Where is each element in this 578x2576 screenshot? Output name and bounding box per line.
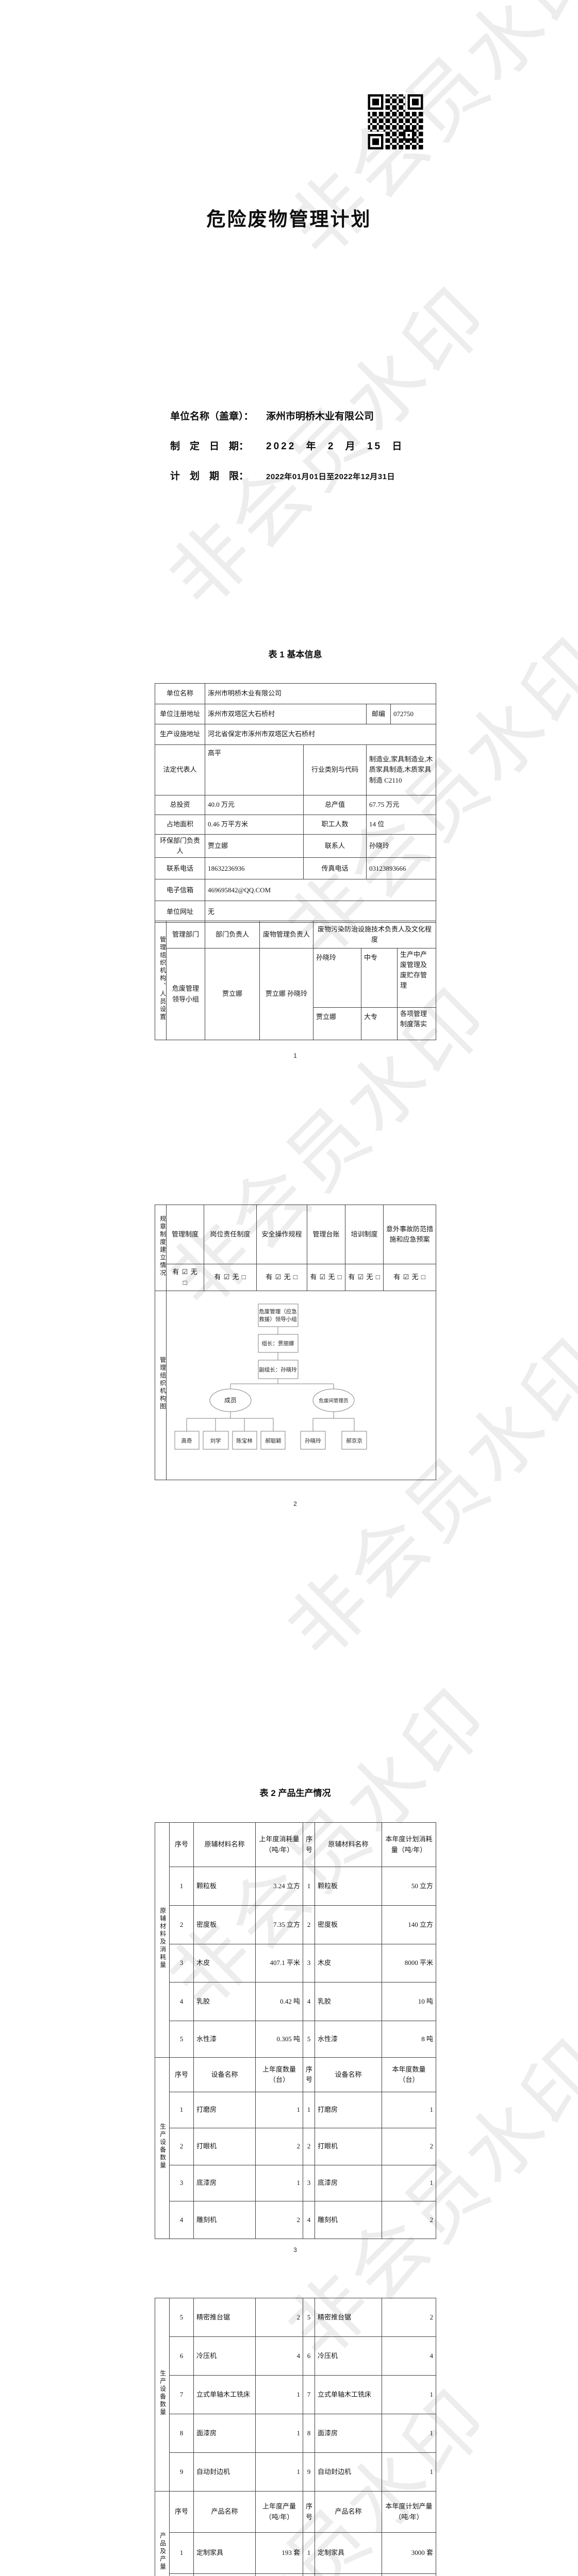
row-index: 2 bbox=[170, 2128, 194, 2165]
prev-count: 2 bbox=[256, 2128, 303, 2165]
prev-count: 4 bbox=[256, 2337, 303, 2376]
unit-name-label: 单位名称（盖章）： bbox=[170, 409, 266, 422]
column-header: 管理部门 bbox=[167, 921, 205, 948]
equipment-row: 2 打眼机 2 2 打眼机 2 bbox=[155, 2128, 436, 2165]
field-label: 单位名称 bbox=[155, 684, 205, 704]
column-header: 岗位责任制度 bbox=[204, 1205, 257, 1264]
issue-date-line: 制 定 日 期：2022 年 2 月 15 日 bbox=[170, 438, 459, 452]
row-index: 7 bbox=[170, 2376, 194, 2414]
field-value: 贾立娜 bbox=[205, 835, 304, 858]
has-checkbox: 有 ☑ 无 □ bbox=[307, 1264, 345, 1291]
field-value: 40.0 万元 bbox=[205, 795, 304, 815]
field-label: 环保部门负责人 bbox=[155, 835, 205, 858]
waste-manager-cell: 贾立娜 孙晓玲 bbox=[260, 948, 313, 1040]
row-index: 3 bbox=[170, 2165, 194, 2201]
equipment-name: 立式单轴木工铣床 bbox=[315, 2376, 382, 2414]
prev-count: 1 bbox=[256, 2092, 303, 2128]
section-label-cell: 规章制度建立情况 bbox=[155, 1205, 167, 1291]
equipment-name: 雕刻机 bbox=[315, 2201, 382, 2239]
column-header: 培训制度 bbox=[345, 1205, 384, 1264]
product-name: 定制家具 bbox=[194, 2533, 256, 2574]
row-index: 1 bbox=[170, 2533, 194, 2574]
plan-count: 1 bbox=[382, 2165, 436, 2201]
prev-output: 162 樘 bbox=[256, 2574, 303, 2576]
column-header: 部门负责人 bbox=[205, 921, 260, 948]
org-text: 郝京京 bbox=[346, 1437, 362, 1444]
section-label-cell: 管理组织机构图 bbox=[155, 1291, 167, 1480]
field-value: 072750 bbox=[391, 704, 436, 724]
production-table: 原辅材料及消耗量 序号 原辅材料名称 上年度消耗量（吨/年） 序号 原辅材料名称… bbox=[155, 1822, 436, 2239]
row-index: 5 bbox=[303, 2021, 315, 2058]
equipment-name: 精密推台锯 bbox=[194, 2298, 256, 2337]
unit-name-line: 单位名称（盖章）：涿州市明桥木业有限公司 bbox=[170, 409, 459, 422]
column-header: 意外事故防范措施和应急预案 bbox=[384, 1205, 436, 1264]
has-checkbox: 有 ☑ 无 □ bbox=[204, 1264, 257, 1291]
products-section-label: 产品及产量 bbox=[158, 2532, 168, 2571]
plan-count: 2 bbox=[382, 2298, 436, 2337]
row-index: 3 bbox=[303, 1944, 315, 1982]
material-name: 密度板 bbox=[194, 1906, 256, 1944]
equipment-section-label: 生产设备数量 bbox=[158, 2123, 168, 2170]
equipment-name: 冷压机 bbox=[194, 2337, 256, 2376]
plan-count: 4 bbox=[382, 2337, 436, 2376]
material-name: 水性漆 bbox=[194, 2021, 256, 2058]
org-text: 救援）领导小组 bbox=[259, 1316, 297, 1323]
field-label: 邮编 bbox=[367, 704, 391, 724]
equipment-row: 4 雕刻机 2 4 雕刻机 2 bbox=[155, 2201, 436, 2239]
equipment-row: 7 立式单轴木工铣床 1 7 立式单轴木工铣床 1 bbox=[155, 2376, 436, 2414]
row-index: 5 bbox=[170, 2298, 194, 2337]
org-text: 郝聪颖 bbox=[265, 1437, 282, 1444]
plan-period-value: 2022年01月01日至2022年12月31日 bbox=[266, 472, 395, 481]
product-name: 木门 bbox=[315, 2574, 382, 2576]
material-row: 3 木皮 407.1 平米 3 木皮 8000 平米 bbox=[155, 1944, 436, 1982]
row-index: 1 bbox=[170, 2092, 194, 2128]
column-header: 原辅材料名称 bbox=[194, 1823, 256, 1867]
row-index: 5 bbox=[170, 2021, 194, 2058]
section-label-cell: 生产设备数量 bbox=[155, 2298, 170, 2492]
column-header: 管理制度 bbox=[167, 1205, 204, 1264]
equipment-row: 9 自动封边机 1 9 自动封边机 1 bbox=[155, 2453, 436, 2492]
plan-amount: 10 吨 bbox=[382, 1982, 436, 2021]
row-index: 8 bbox=[303, 2414, 315, 2453]
plan-count: 2 bbox=[382, 2201, 436, 2239]
person-name: 孙晓玲 bbox=[313, 948, 361, 1008]
column-header: 本年度计划消耗量（吨/年） bbox=[382, 1823, 436, 1867]
plan-count: 1 bbox=[382, 2376, 436, 2414]
material-name: 木皮 bbox=[194, 1944, 256, 1982]
org-text: 刘学 bbox=[210, 1437, 221, 1444]
column-header: 设备名称 bbox=[315, 2058, 382, 2092]
material-name: 乳胶 bbox=[315, 1982, 382, 2021]
page-number: 2 bbox=[155, 1500, 436, 1507]
prev-count: 1 bbox=[256, 2453, 303, 2492]
material-name: 木皮 bbox=[315, 1944, 382, 1982]
field-label: 联系电话 bbox=[155, 858, 205, 879]
org-text: 危废管理（应急 bbox=[259, 1308, 297, 1315]
person-education: 大专 bbox=[361, 1008, 398, 1040]
row-index: 3 bbox=[303, 2165, 315, 2201]
prev-amount: 7.35 立方 bbox=[256, 1906, 303, 1944]
prev-output: 193 套 bbox=[256, 2533, 303, 2574]
org-text: 组长：贾丽娜 bbox=[262, 1340, 294, 1347]
equipment-name: 底漆房 bbox=[315, 2165, 382, 2201]
has-checkbox: 有 ☑ 无 □ bbox=[384, 1264, 436, 1291]
personnel-section-label: 管理组织机构、人员设置 bbox=[158, 936, 167, 1021]
product-name: 定制家具 bbox=[315, 2533, 382, 2574]
row-index: 1 bbox=[170, 1867, 194, 1906]
material-row: 2 密度板 7.35 立方 2 密度板 140 立方 bbox=[155, 1906, 436, 1944]
table2-caption: 表 2 产品生产情况 bbox=[155, 1786, 436, 1799]
product-row: 2 木门 162 樘 2 木门 3000 樘 bbox=[155, 2574, 436, 2576]
material-name: 颗粒板 bbox=[194, 1867, 256, 1906]
column-header: 安全操作规程 bbox=[257, 1205, 307, 1264]
material-row: 1 颗粒板 3.24 立方 1 颗粒板 50 立方 bbox=[155, 1867, 436, 1906]
field-value: 14 位 bbox=[367, 815, 436, 835]
prev-amount: 0.42 吨 bbox=[256, 1982, 303, 2021]
field-value: 制造业,家具制造业,木质家具制造,木质家具制造 C2110 bbox=[367, 745, 436, 795]
column-header: 序号 bbox=[303, 2492, 315, 2533]
person-duty: 生产中产废管理及废贮存管理 bbox=[398, 948, 436, 1008]
field-value: 高平 bbox=[205, 745, 304, 795]
org-box-leading-group bbox=[258, 1304, 298, 1327]
equipment-name: 冷压机 bbox=[315, 2337, 382, 2376]
equipment-name: 打磨房 bbox=[315, 2092, 382, 2128]
row-index: 4 bbox=[303, 2201, 315, 2239]
field-label: 联系人 bbox=[304, 835, 367, 858]
dept-head-cell: 贾立娜 bbox=[205, 948, 260, 1040]
row-index: 6 bbox=[303, 2337, 315, 2376]
prev-count: 1 bbox=[256, 2376, 303, 2414]
product-row: 1 定制家具 193 套 1 定制家具 3000 套 bbox=[155, 2533, 436, 2574]
row-index: 4 bbox=[170, 2201, 194, 2239]
prev-count: 2 bbox=[256, 2201, 303, 2239]
issue-date-value: 2022 年 2 月 15 日 bbox=[266, 441, 404, 452]
equipment-name: 面漆房 bbox=[194, 2414, 256, 2453]
section-label-cell: 原辅材料及消耗量 bbox=[155, 1823, 170, 2058]
field-value: 0.46 万平方米 bbox=[205, 815, 304, 835]
section-label-cell: 管理组织机构、人员设置 bbox=[155, 921, 167, 1040]
column-header: 产品名称 bbox=[315, 2492, 382, 2533]
equipment-name: 立式单轴木工铣床 bbox=[194, 2376, 256, 2414]
equipment-name: 打眼机 bbox=[194, 2128, 256, 2165]
row-index: 1 bbox=[303, 2533, 315, 2574]
row-index: 2 bbox=[303, 2574, 315, 2576]
person-education: 中专 bbox=[361, 948, 398, 1008]
material-name: 密度板 bbox=[315, 1906, 382, 1944]
field-label: 行业类别与代码 bbox=[304, 745, 367, 795]
prev-amount: 0.305 吨 bbox=[256, 2021, 303, 2058]
field-label: 单位网址 bbox=[155, 901, 205, 923]
row-index: 3 bbox=[170, 1944, 194, 1982]
row-index: 6 bbox=[170, 2337, 194, 2376]
equipment-name: 打眼机 bbox=[315, 2128, 382, 2165]
field-label: 法定代表人 bbox=[155, 745, 205, 795]
issue-date-label: 制 定 日 期： bbox=[170, 438, 266, 452]
field-value: 孙晓玲 bbox=[367, 835, 436, 858]
page-number: 3 bbox=[155, 2246, 436, 2253]
column-header: 产品名称 bbox=[194, 2492, 256, 2533]
field-label: 单位注册地址 bbox=[155, 704, 205, 724]
column-header: 上年度数量（台） bbox=[256, 2058, 303, 2092]
column-header: 本年度数量（台） bbox=[382, 2058, 436, 2092]
personnel-table: 管理组织机构、人员设置 管理部门 部门负责人 废物管理负责人 废物污染防治设施技… bbox=[155, 921, 436, 1040]
field-label: 总产值 bbox=[304, 795, 367, 815]
field-label: 生产设施地址 bbox=[155, 724, 205, 745]
column-header: 原辅材料名称 bbox=[315, 1823, 382, 1867]
plan-count: 2 bbox=[382, 2128, 436, 2165]
org-chart-cell: 危废管理（应急 救援）领导小组 组长：贾丽娜 副组长：孙晓玲 成员 危废间管理员… bbox=[167, 1291, 436, 1480]
row-index: 2 bbox=[170, 1906, 194, 1944]
field-value: 03123893666 bbox=[367, 858, 436, 879]
field-value: 469695842@QQ.COM bbox=[205, 879, 436, 901]
column-header: 废物污染防治设施技术负责人及文化程度 bbox=[313, 921, 436, 948]
field-label: 占地面积 bbox=[155, 815, 205, 835]
field-value: 18632236936 bbox=[205, 858, 304, 879]
row-index: 2 bbox=[170, 2574, 194, 2576]
person-duty: 各项管理制度落实 bbox=[398, 1008, 436, 1040]
row-index: 4 bbox=[170, 1982, 194, 2021]
material-name: 水性漆 bbox=[315, 2021, 382, 2058]
column-header: 废物管理负责人 bbox=[260, 921, 313, 948]
qr-code bbox=[367, 94, 424, 149]
field-label: 总投资 bbox=[155, 795, 205, 815]
table1-caption: 表 1 基本信息 bbox=[155, 647, 436, 660]
equipment-name: 自动封边机 bbox=[315, 2453, 382, 2492]
prev-count: 1 bbox=[256, 2414, 303, 2453]
person-name: 贾立娜 bbox=[313, 1008, 361, 1040]
field-label: 电子信箱 bbox=[155, 879, 205, 901]
column-header: 序号 bbox=[170, 1823, 194, 1867]
equipment-row: 8 面漆房 1 8 面漆房 1 bbox=[155, 2414, 436, 2453]
material-row: 4 乳胶 0.42 吨 4 乳胶 10 吨 bbox=[155, 1982, 436, 2021]
has-checkbox: 有 ☑ 无 □ bbox=[257, 1264, 307, 1291]
institutions-table: 规章制度建立情况 管理制度 岗位责任制度 安全操作规程 管理台账 培训制度 意外… bbox=[155, 1205, 436, 1480]
equipment-name: 雕刻机 bbox=[194, 2201, 256, 2239]
org-text: 陈宝林 bbox=[236, 1437, 253, 1444]
prev-amount: 3.24 立方 bbox=[256, 1867, 303, 1906]
plan-count: 1 bbox=[382, 2414, 436, 2453]
row-index: 1 bbox=[303, 1867, 315, 1906]
orgchart-section-label: 管理组织机构图 bbox=[158, 1357, 167, 1411]
row-index: 8 bbox=[170, 2414, 194, 2453]
row-index: 5 bbox=[303, 2298, 315, 2337]
org-text: 成员 bbox=[224, 1397, 237, 1404]
institutions-section-label: 规章制度建立情况 bbox=[158, 1215, 167, 1277]
section-label-cell: 生产设备数量 bbox=[155, 2058, 170, 2239]
equipment-section-label: 生产设备数量 bbox=[158, 2370, 168, 2416]
production-table-continued: 生产设备数量 5 精密推台锯 2 5 精密推台锯 2 6 冷压机 4 6 冷压机… bbox=[155, 2298, 436, 2576]
org-chart: 危废管理（应急 救援）领导小组 组长：贾丽娜 副组长：孙晓玲 成员 危废间管理员… bbox=[169, 1292, 436, 1479]
field-value: 河北省保定市涿州市双塔区大石桥村 bbox=[205, 724, 436, 745]
field-value: 无 bbox=[205, 901, 436, 923]
equipment-row: 1 打磨房 1 1 打磨房 1 bbox=[155, 2092, 436, 2128]
product-name: 木门 bbox=[194, 2574, 256, 2576]
has-checkbox: 有 ☑ 无 □ bbox=[167, 1264, 204, 1291]
plan-amount: 8000 平米 bbox=[382, 1944, 436, 1982]
equipment-row: 3 底漆房 1 3 底漆房 1 bbox=[155, 2165, 436, 2201]
row-index: 4 bbox=[303, 1982, 315, 2021]
org-text: 孙晓玲 bbox=[305, 1437, 321, 1444]
equipment-name: 面漆房 bbox=[315, 2414, 382, 2453]
column-header: 设备名称 bbox=[194, 2058, 256, 2092]
page-number: 1 bbox=[155, 1052, 436, 1059]
equipment-row: 生产设备数量 5 精密推台锯 2 5 精密推台锯 2 bbox=[155, 2298, 436, 2337]
equipment-name: 底漆房 bbox=[194, 2165, 256, 2201]
equipment-name: 打磨房 bbox=[194, 2092, 256, 2128]
column-header: 上年度消耗量（吨/年） bbox=[256, 1823, 303, 1867]
has-checkbox: 有 ☑ 无 □ bbox=[345, 1264, 384, 1291]
field-label: 职工人数 bbox=[304, 815, 367, 835]
column-header: 本年度计划产量（吨/年） bbox=[382, 2492, 436, 2533]
plan-output: 3000 套 bbox=[382, 2533, 436, 2574]
equipment-row: 6 冷压机 4 6 冷压机 4 bbox=[155, 2337, 436, 2376]
column-header: 序号 bbox=[303, 2058, 315, 2092]
plan-amount: 140 立方 bbox=[382, 1906, 436, 1944]
document-page: 非会员水印 非会员水印 非会员水印 非会员水印 非会员水印 非会员水印 非会员水… bbox=[0, 0, 578, 2576]
material-row: 5 水性漆 0.305 吨 5 水性漆 8 吨 bbox=[155, 2021, 436, 2058]
row-index: 9 bbox=[170, 2453, 194, 2492]
plan-amount: 8 吨 bbox=[382, 2021, 436, 2058]
materials-section-label: 原辅材料及消耗量 bbox=[158, 1907, 168, 1969]
plan-period-line: 计 划 期 限：2022年01月01日至2022年12月31日 bbox=[170, 468, 459, 482]
material-name: 颗粒板 bbox=[315, 1867, 382, 1906]
org-text: 副组长：孙晓玲 bbox=[259, 1366, 297, 1373]
material-name: 乳胶 bbox=[194, 1982, 256, 2021]
plan-period-label: 计 划 期 限： bbox=[170, 468, 266, 482]
basic-info-table: 单位名称 涿州市明桥木业有限公司 单位注册地址 涿州市双塔区大石桥村 邮编 07… bbox=[155, 683, 436, 923]
column-header: 序号 bbox=[170, 2058, 194, 2092]
prev-count: 1 bbox=[256, 2165, 303, 2201]
org-text: 危废间管理员 bbox=[319, 1398, 348, 1404]
section-label-cell: 产品及产量 bbox=[155, 2492, 170, 2576]
plan-count: 1 bbox=[382, 2453, 436, 2492]
row-index: 7 bbox=[303, 2376, 315, 2414]
field-value: 涿州市明桥木业有限公司 bbox=[205, 684, 436, 704]
plan-amount: 50 立方 bbox=[382, 1867, 436, 1906]
document-title: 危险废物管理计划 bbox=[0, 204, 578, 231]
row-index: 9 bbox=[303, 2453, 315, 2492]
column-header: 管理台账 bbox=[307, 1205, 345, 1264]
dept-cell: 危废管理领导小组 bbox=[167, 948, 205, 1040]
prev-count: 2 bbox=[256, 2298, 303, 2337]
column-header: 上年度产量（吨/年） bbox=[256, 2492, 303, 2533]
field-label: 传真电话 bbox=[304, 858, 367, 879]
prev-amount: 407.1 平米 bbox=[256, 1944, 303, 1982]
column-header: 序号 bbox=[170, 2492, 194, 2533]
field-value: 涿州市双塔区大石桥村 bbox=[205, 704, 367, 724]
field-value: 67.75 万元 bbox=[367, 795, 436, 815]
equipment-name: 自动封边机 bbox=[194, 2453, 256, 2492]
unit-name-value: 涿州市明桥木业有限公司 bbox=[266, 411, 374, 422]
plan-count: 1 bbox=[382, 2092, 436, 2128]
row-index: 1 bbox=[303, 2092, 315, 2128]
row-index: 2 bbox=[303, 2128, 315, 2165]
equipment-name: 精密推台锯 bbox=[315, 2298, 382, 2337]
plan-output: 3000 樘 bbox=[382, 2574, 436, 2576]
row-index: 2 bbox=[303, 1906, 315, 1944]
org-text: 高奇 bbox=[181, 1437, 192, 1444]
column-header: 序号 bbox=[303, 1823, 315, 1867]
